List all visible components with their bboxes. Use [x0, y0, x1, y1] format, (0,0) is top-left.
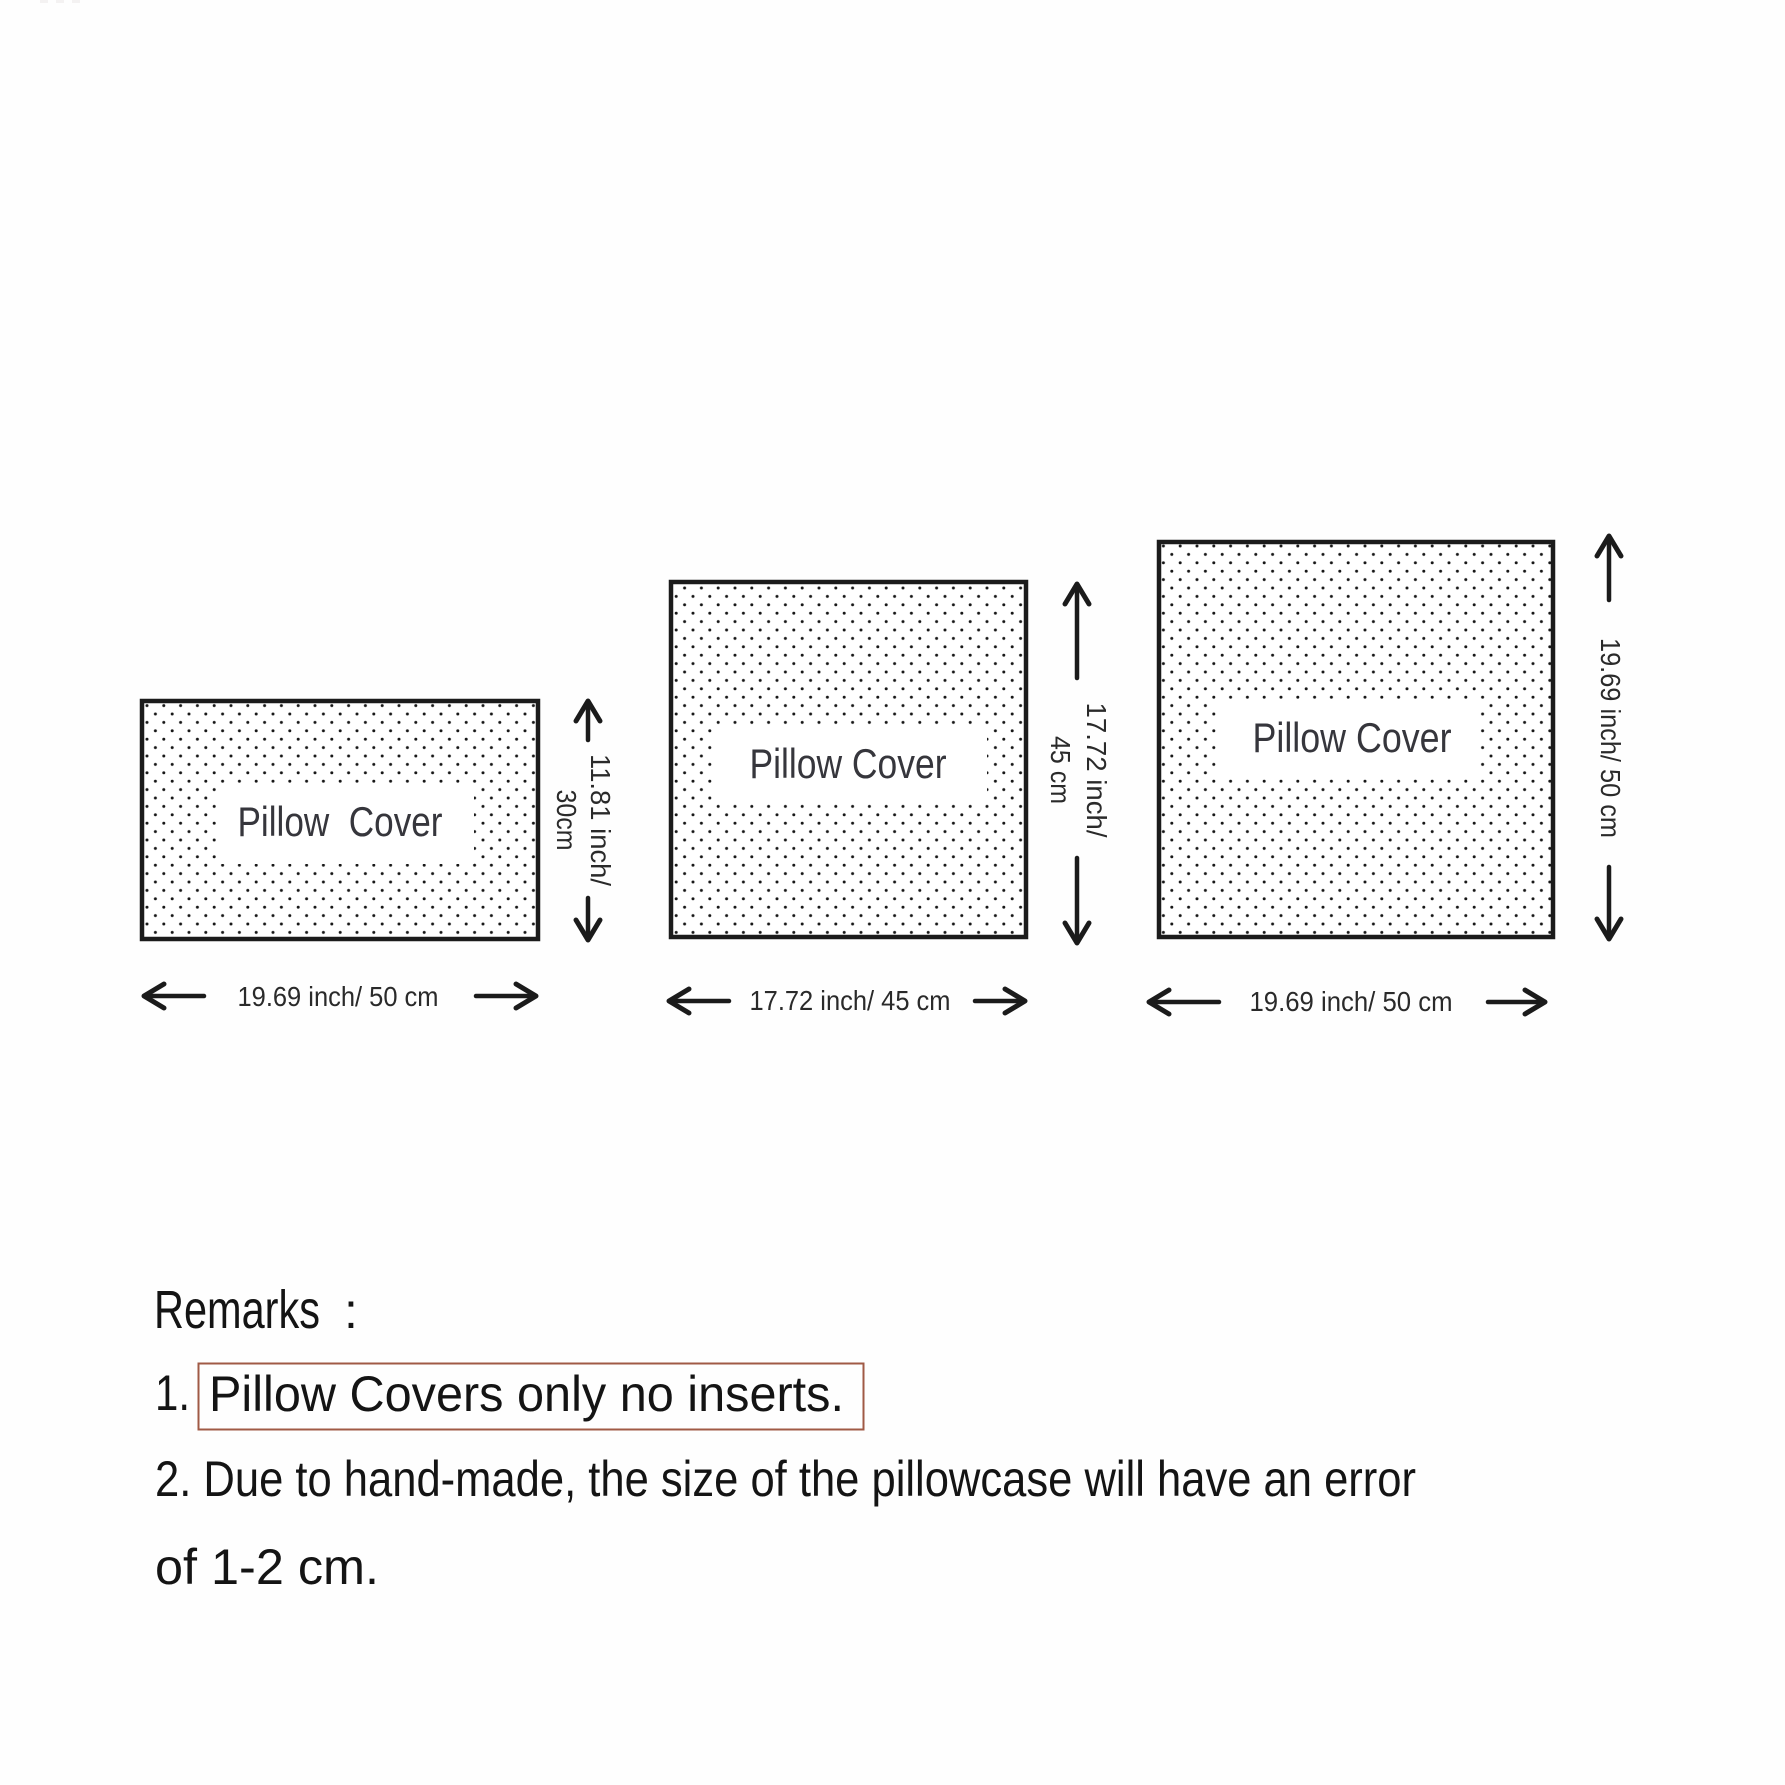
svg-text:Pillow Cover: Pillow Cover: [750, 740, 947, 787]
svg-text:Pillow Covers only no inserts.: Pillow Covers only no inserts.: [209, 1366, 844, 1422]
svg-text:17.72 inch/ 45 cm: 17.72 inch/ 45 cm: [750, 985, 951, 1016]
svg-text:19.69 inch/ 50 cm: 19.69 inch/ 50 cm: [238, 981, 439, 1012]
svg-text:1.: 1.: [155, 1365, 190, 1421]
svg-text:of 1-2 cm.: of 1-2 cm.: [155, 1539, 379, 1595]
svg-text:Pillow Cover: Pillow Cover: [238, 798, 443, 845]
svg-text:Pillow Cover: Pillow Cover: [1253, 714, 1452, 761]
svg-text:19.69 inch/ 50 cm: 19.69 inch/ 50 cm: [1250, 986, 1453, 1017]
svg-text:2. Due to hand-made, the size: 2. Due to hand-made, the size of the pil…: [155, 1451, 1416, 1507]
svg-text:19.69 inch/ 50 cm: 19.69 inch/ 50 cm: [1595, 638, 1626, 838]
